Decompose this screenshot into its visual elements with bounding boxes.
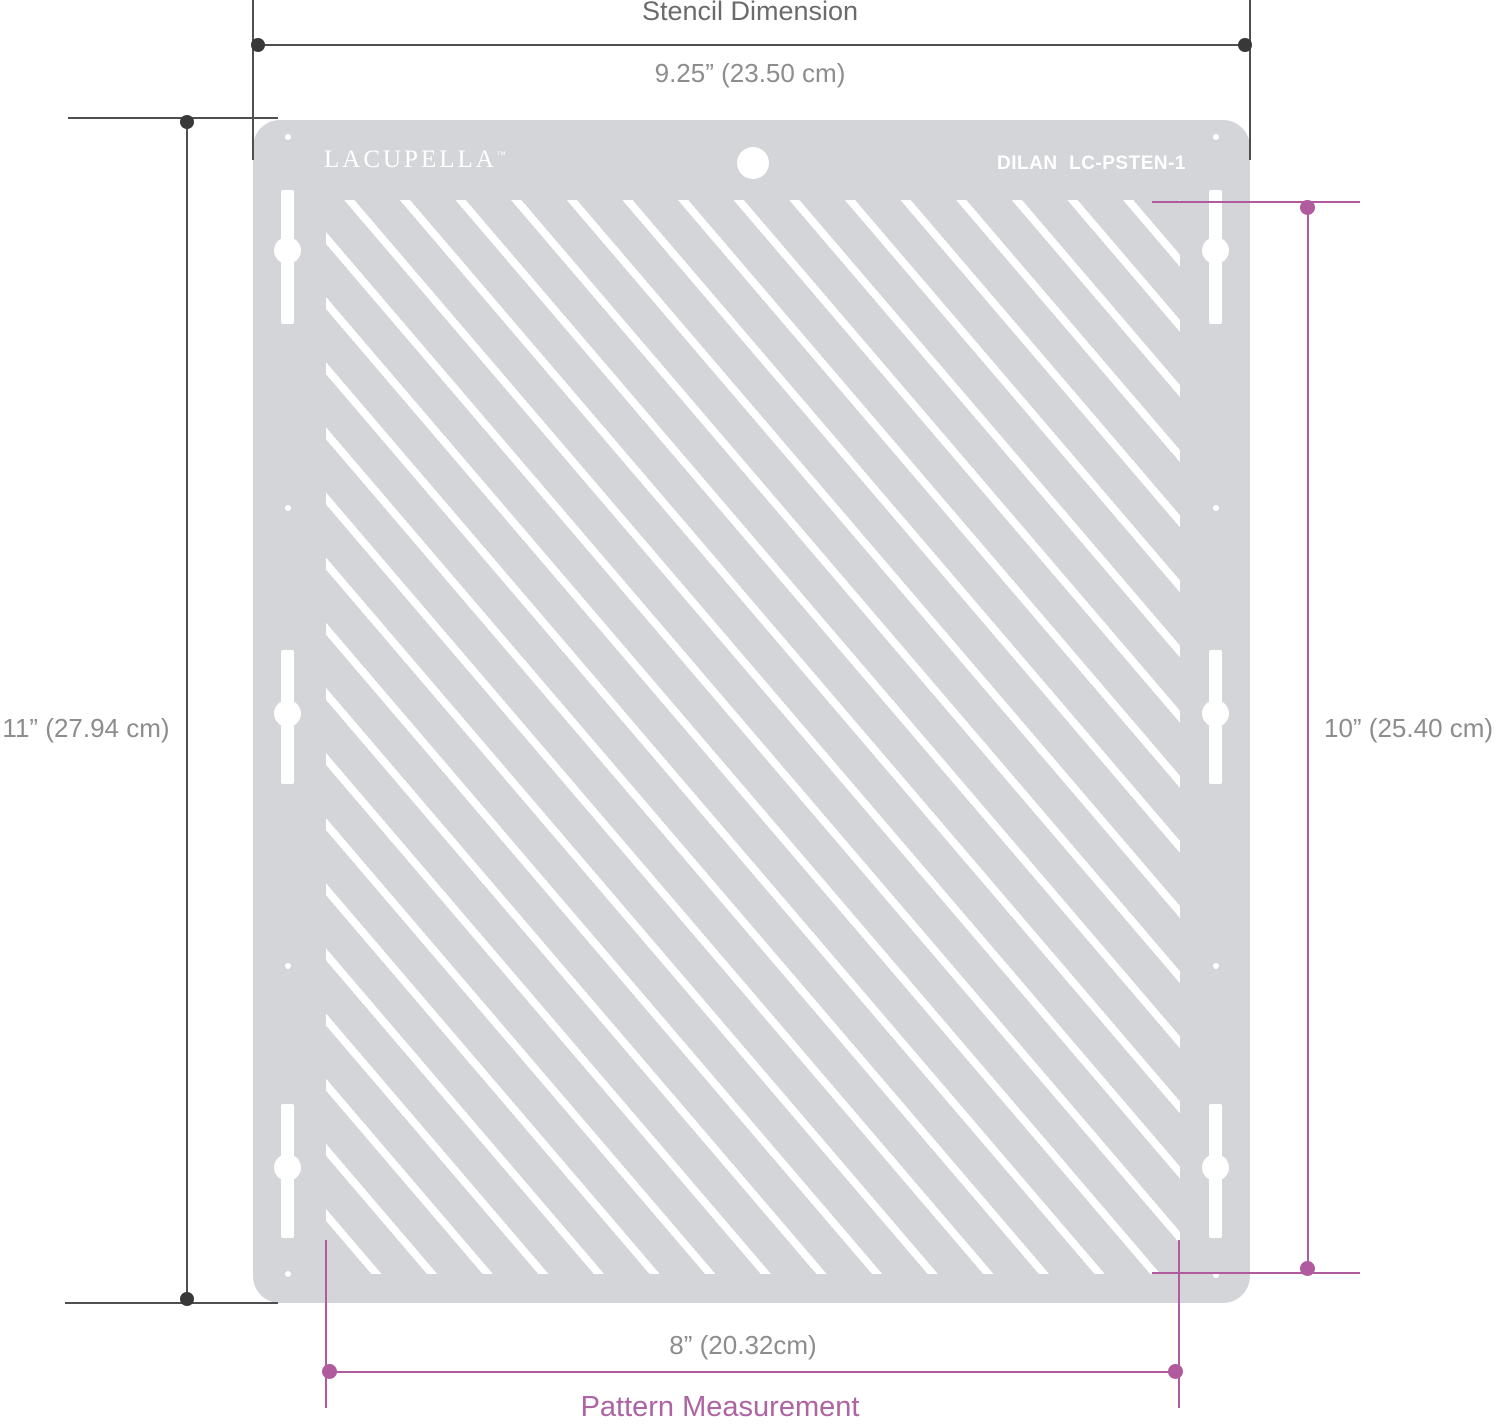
trademark-symbol: ™ [497,150,506,160]
part-number: DILAN LC-PSTEN-1 [997,153,1186,175]
stencil-height-value: 11” (27.94 cm) [0,713,176,744]
dimension-line [326,1371,1180,1373]
registration-slot-circle [1202,700,1229,727]
stencil-dimension-title: Stencil Dimension [400,0,1100,27]
dimension-endpoint-dot [1300,200,1315,215]
registration-dot [285,963,291,969]
registration-slot-circle [274,1154,301,1181]
registration-dot [1213,963,1219,969]
pattern-height-value: 10” (25.40 cm) [1324,713,1493,744]
registration-slot-circle [274,237,301,264]
dimension-endpoint-dot [1238,38,1252,52]
registration-dot [285,1271,291,1277]
registration-slot-circle [1202,1154,1229,1181]
extension-line [252,0,254,160]
extension-line [325,1240,327,1408]
brand-logo: LACUPELLA™ [324,146,506,174]
dimension-line [186,122,188,1299]
registration-dot [285,134,291,140]
dimension-line [258,44,1246,46]
extension-line [1178,1240,1180,1408]
dimension-endpoint-dot [1168,1364,1183,1379]
dimension-line [1307,207,1309,1268]
registration-dot [285,505,291,511]
extension-line [65,1302,278,1304]
diagonal-stripe-pattern [326,200,1180,1274]
dimension-endpoint-dot [180,115,194,129]
pattern-measurement-title: Pattern Measurement [420,1391,1020,1424]
hanging-hole [737,147,769,179]
registration-slot-circle [274,700,301,727]
dimension-endpoint-dot [251,38,265,52]
pattern-width-value: 8” (20.32cm) [443,1330,1043,1361]
extension-line [1249,0,1251,160]
extension-line [1152,1272,1360,1274]
extension-line [68,117,278,119]
stencil-plate: LACUPELLA™ DILAN LC-PSTEN-1 [253,120,1250,1303]
brand-text: LACUPELLA [324,146,497,173]
registration-dot [1213,134,1219,140]
stencil-dimension-diagram: LACUPELLA™ DILAN LC-PSTEN-1 Stencil Dime… [0,0,1500,1425]
registration-slot-circle [1202,237,1229,264]
extension-line [1152,201,1360,203]
registration-dot [1213,505,1219,511]
dimension-endpoint-dot [1300,1261,1315,1276]
dimension-endpoint-dot [180,1292,194,1306]
dimension-endpoint-dot [322,1364,337,1379]
stencil-width-value: 9.25” (23.50 cm) [400,58,1100,89]
